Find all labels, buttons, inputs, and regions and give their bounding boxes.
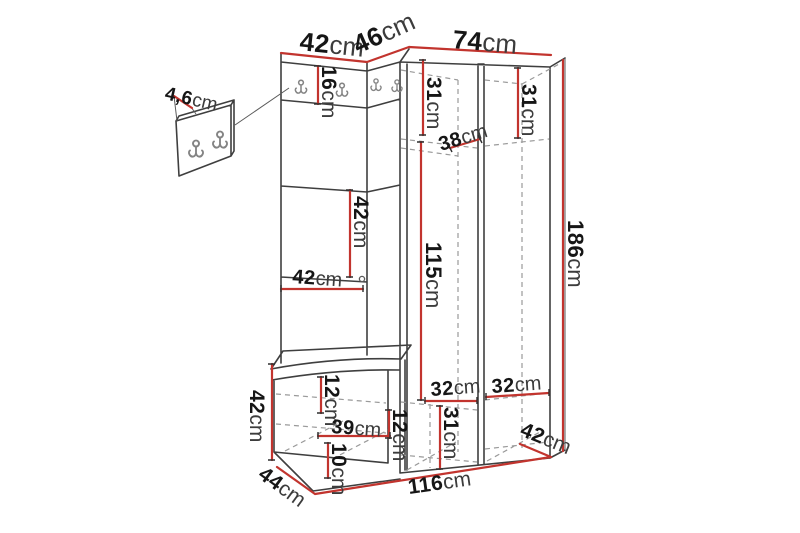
dim-hook-strip-height: 16cm [317, 66, 340, 118]
dim-hanging-space-height: 115cm [421, 242, 446, 308]
coat-hook-icon [213, 132, 227, 148]
knob [359, 276, 364, 281]
dim-wardrobe-depth: 42cm [517, 418, 574, 459]
dim-corner-section-width: 46cm [348, 6, 419, 60]
dimension-diagram: 4,6cm 42cm 46cm 74cm 16cm 31cm 31cm 38cm… [0, 0, 800, 533]
dim-detail-panel-width: 4,6cm [163, 83, 220, 115]
dim-mirror-height: 42cm [349, 196, 372, 248]
dim-total-height: 186cm [563, 220, 588, 288]
dim-right-shelf-width: 32cm [491, 373, 542, 398]
dim-bottom-cubby-height: 31cm [439, 407, 462, 459]
dim-left-cubby-height: 31cm [422, 77, 445, 129]
coat-hook-icon [189, 141, 203, 157]
dim-plinth-height: 10cm [327, 443, 350, 495]
dim-bench-height: 42cm [245, 390, 268, 442]
coat-hook-icon [295, 80, 306, 93]
dim-right-cubby-height: 31cm [517, 84, 540, 136]
dim-bench-inner-width: 39cm [331, 416, 382, 441]
hallway-unit-drawing: 4,6cm 42cm 46cm 74cm 16cm 31cm 31cm 38cm… [0, 0, 800, 533]
coat-hooks [189, 79, 402, 157]
dim-wardrobe-section-width: 74cm [451, 24, 518, 60]
coat-hook-icon [371, 79, 381, 91]
dim-left-panel-width: 42cm [292, 266, 343, 291]
dim-bench-inner-gap: 12cm [388, 409, 411, 461]
dimension-labels: 4,6cm 42cm 46cm 74cm 16cm 31cm 31cm 38cm… [163, 6, 588, 512]
dim-left-shelf-width: 32cm [430, 376, 481, 401]
